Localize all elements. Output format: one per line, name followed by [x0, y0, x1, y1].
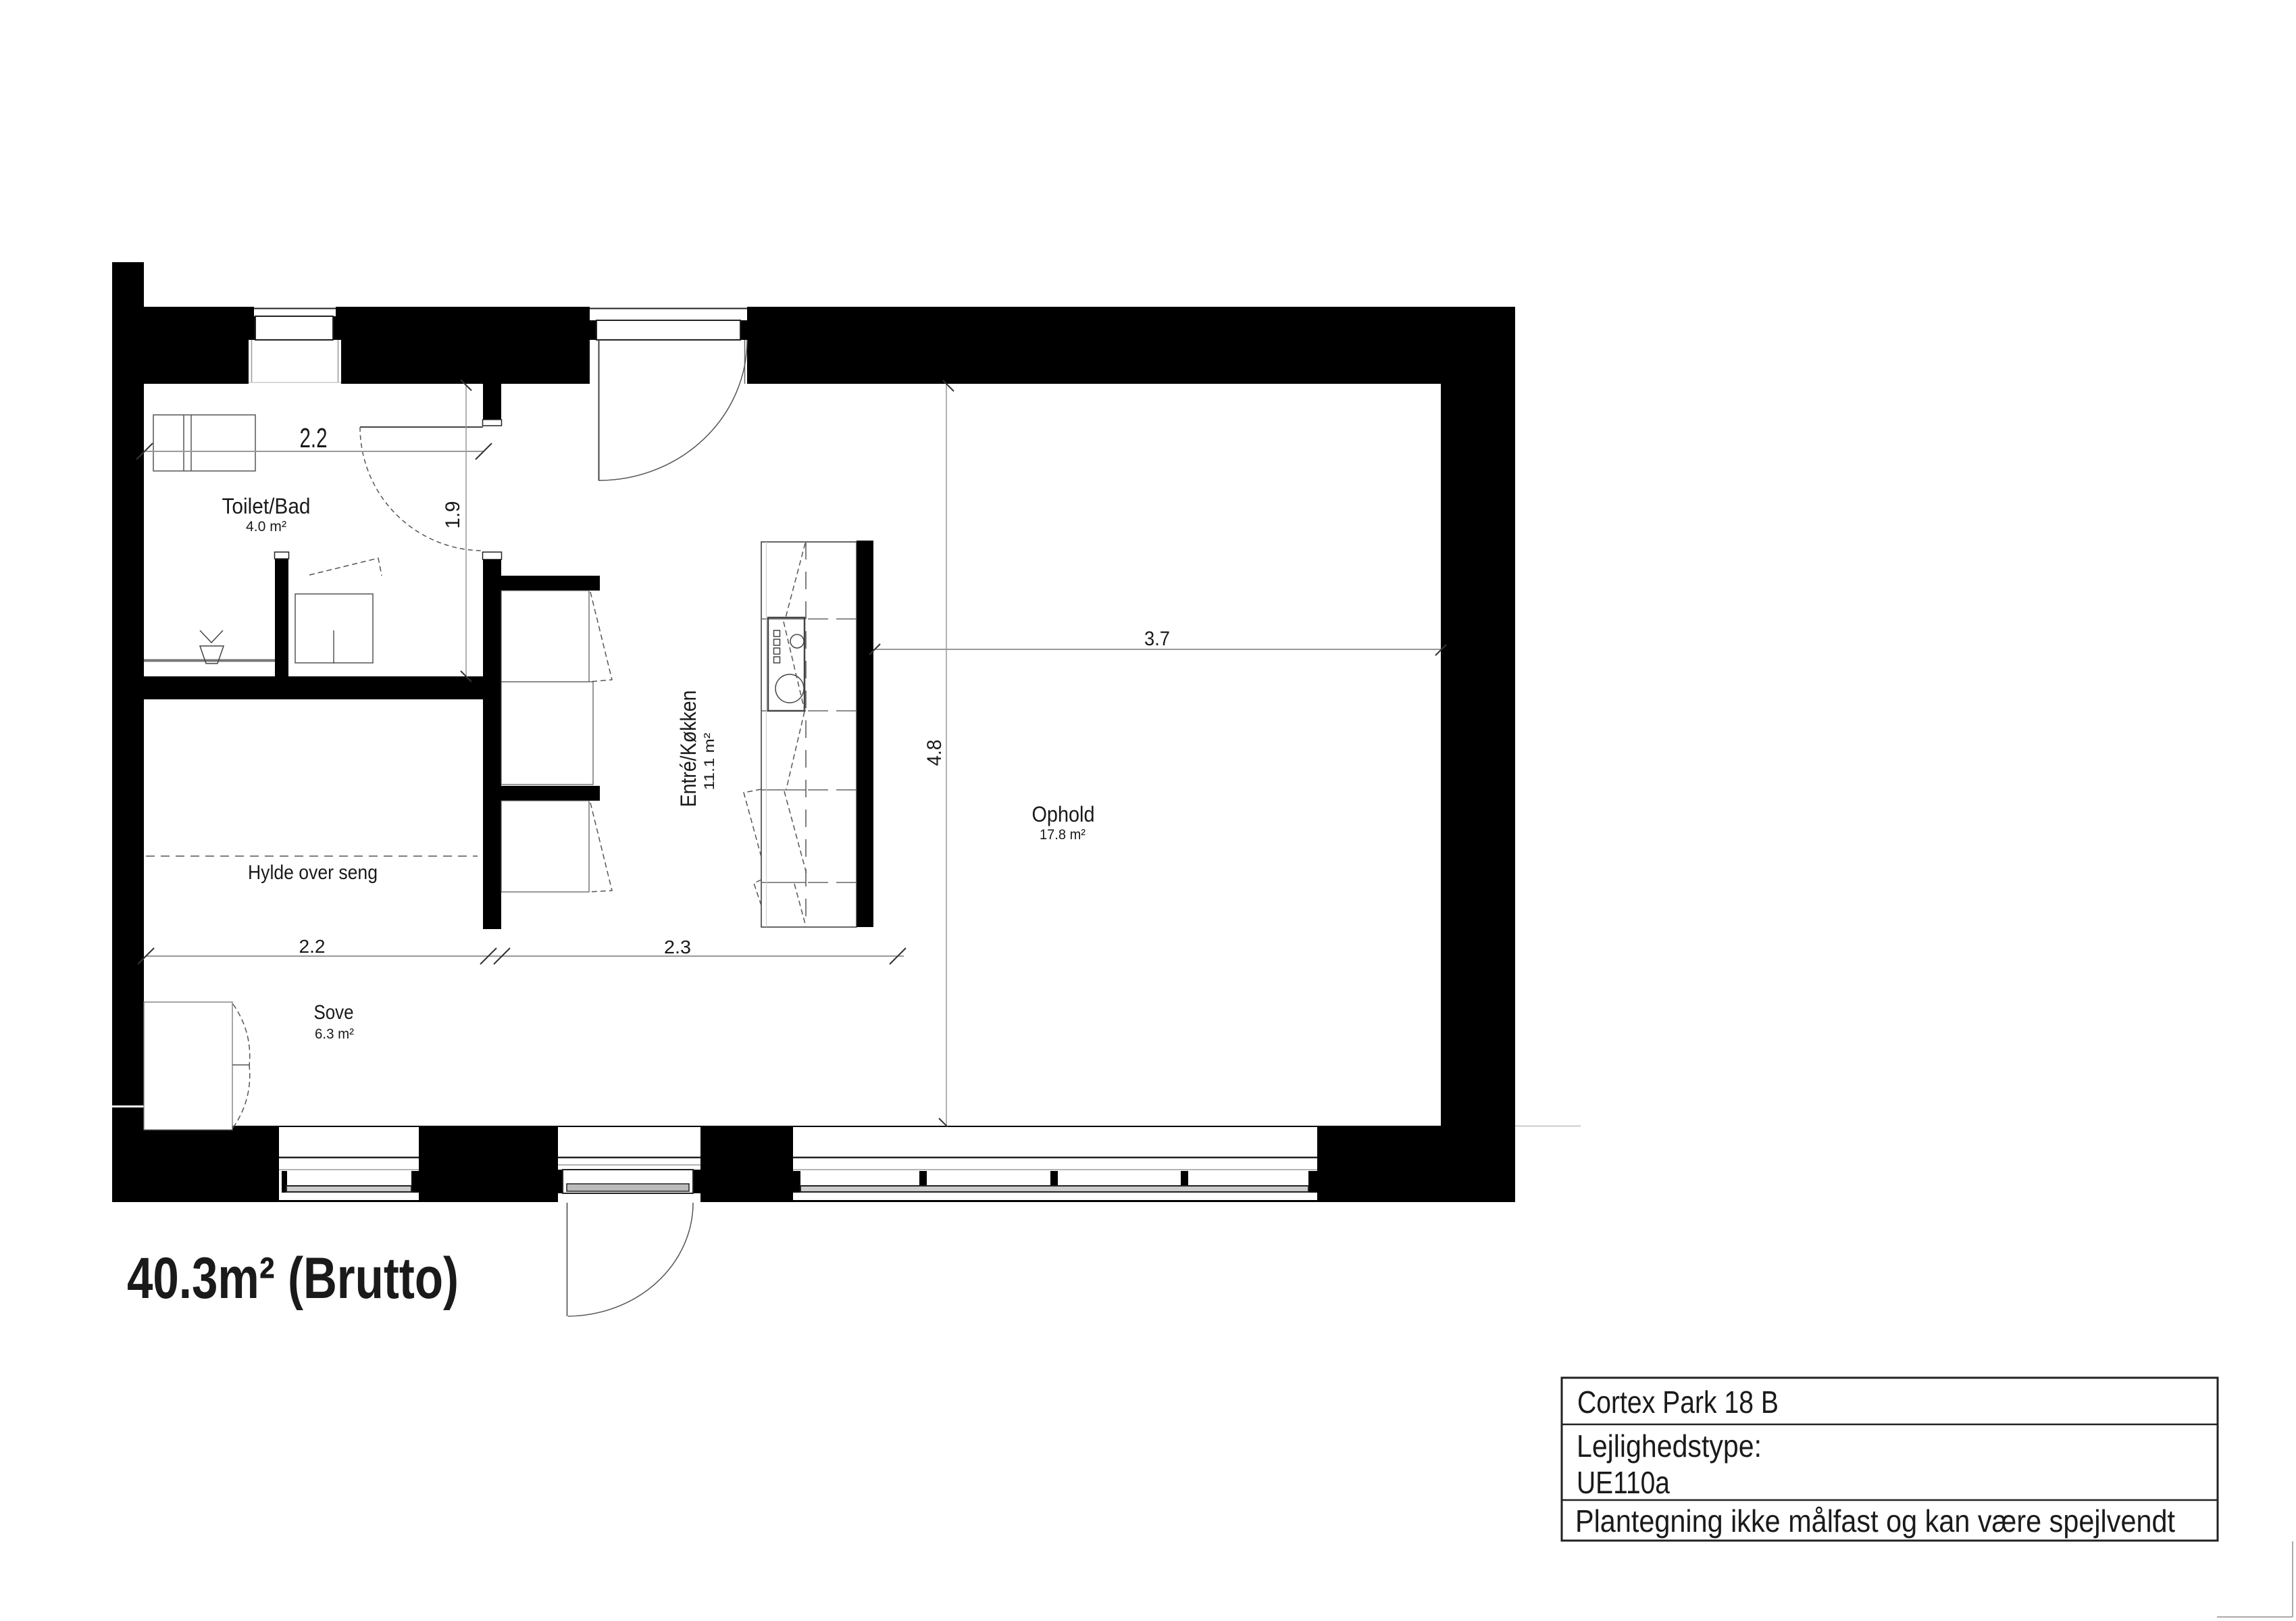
- svg-text:Ophold: Ophold: [1032, 802, 1095, 826]
- svg-text:6.3 m²: 6.3 m²: [315, 1026, 354, 1042]
- svg-text:40.3m² (Brutto): 40.3m² (Brutto): [127, 1246, 459, 1311]
- svg-text:UE110a: UE110a: [1577, 1465, 1670, 1500]
- svg-text:4.0 m²: 4.0 m²: [246, 519, 286, 534]
- svg-text:2.2: 2.2: [300, 422, 328, 453]
- svg-text:Cortex Park 18 B: Cortex Park 18 B: [1577, 1385, 1779, 1420]
- svg-text:Toilet/Bad: Toilet/Bad: [222, 494, 311, 518]
- svg-text:4.8: 4.8: [923, 740, 946, 766]
- svg-text:Entré/Køkken: Entré/Køkken: [676, 691, 700, 807]
- svg-text:2.2: 2.2: [299, 936, 326, 957]
- svg-text:Lejlighedstype:: Lejlighedstype:: [1577, 1428, 1762, 1464]
- svg-text:2.3: 2.3: [664, 937, 691, 957]
- svg-text:1.9: 1.9: [442, 501, 464, 529]
- svg-text:11.1 m²: 11.1 m²: [702, 732, 717, 790]
- svg-text:Sove: Sove: [314, 1001, 354, 1024]
- svg-text:Plantegning ikke målfast og ka: Plantegning ikke målfast og kan være spe…: [1575, 1503, 2175, 1539]
- svg-text:17.8 m²: 17.8 m²: [1040, 827, 1086, 843]
- svg-text:3.7: 3.7: [1144, 628, 1170, 650]
- svg-text:Hylde over seng: Hylde over seng: [248, 862, 378, 884]
